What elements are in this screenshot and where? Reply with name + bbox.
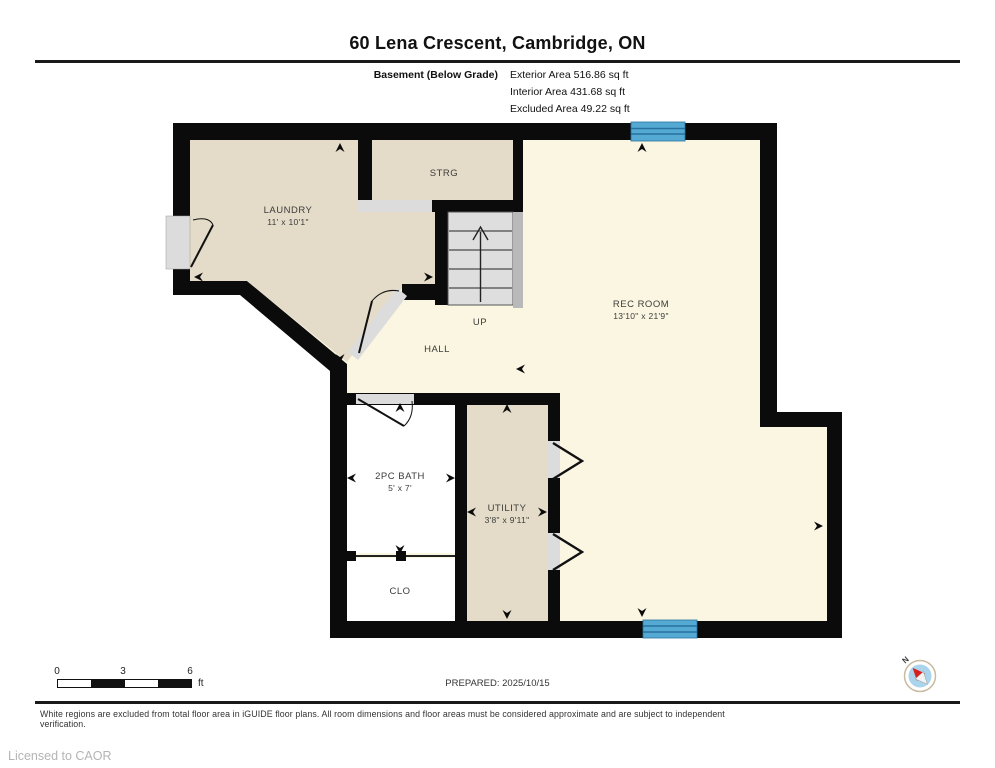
scale-tick-6: 6	[187, 666, 193, 677]
label-clo: CLO	[389, 586, 410, 597]
label-hall: HALL	[424, 344, 450, 355]
label-utility: UTILITY	[488, 503, 527, 514]
label-bath-dims: 5' x 7'	[388, 483, 412, 493]
footer-divider	[35, 701, 960, 704]
label-strg: STRG	[430, 168, 458, 179]
scale-tick-0: 0	[54, 666, 60, 677]
label-bath: 2PC BATH	[375, 471, 425, 482]
stair-side-strip	[513, 212, 523, 308]
strg-doorway	[358, 200, 432, 212]
label-utility-dims: 3'8" x 9'11"	[485, 515, 530, 525]
floor-plan-svg: LAUNDRY 11' x 10'1" STRG REC ROOM 13'10"…	[0, 0, 995, 768]
prepared-date: PREPARED: 2025/10/15	[0, 678, 995, 689]
stairs	[448, 212, 523, 308]
label-laundry-dims: 11' x 10'1"	[267, 217, 309, 227]
window-top	[631, 122, 685, 141]
disclaimer-text: White regions are excluded from total fl…	[40, 709, 770, 729]
label-rec-room: REC ROOM	[613, 299, 669, 310]
entry-door-recess	[166, 216, 190, 269]
label-up: UP	[473, 317, 487, 328]
window-bottom	[643, 620, 697, 638]
floor-plan-page: 60 Lena Crescent, Cambridge, ON Basement…	[0, 0, 995, 768]
compass-north-label: N	[900, 655, 910, 666]
licensed-to: Licensed to CAOR	[8, 749, 112, 763]
label-rec-room-dims: 13'10" x 21'9"	[613, 311, 669, 321]
label-laundry: LAUNDRY	[264, 205, 313, 216]
scale-tick-3: 3	[120, 666, 126, 677]
